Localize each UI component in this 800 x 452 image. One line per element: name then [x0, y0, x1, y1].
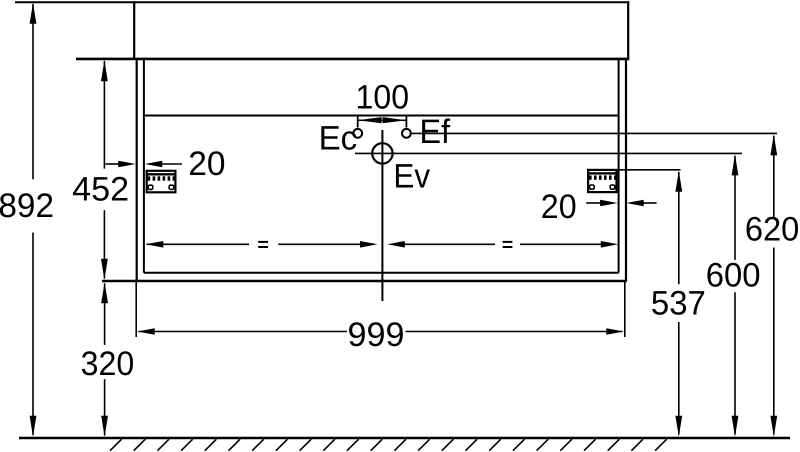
svg-text:892: 892	[0, 187, 54, 225]
svg-text:Ec: Ec	[319, 120, 358, 158]
svg-text:620: 620	[745, 211, 800, 249]
svg-text:452: 452	[72, 170, 129, 208]
svg-text:999: 999	[348, 316, 405, 354]
svg-text:Ef: Ef	[420, 113, 451, 151]
svg-text:Ev: Ev	[393, 157, 430, 195]
svg-text:100: 100	[356, 79, 410, 117]
svg-text:20: 20	[541, 188, 577, 226]
svg-text:20: 20	[188, 145, 225, 183]
svg-text:600: 600	[706, 257, 761, 295]
svg-text:537: 537	[651, 285, 706, 323]
svg-text:320: 320	[81, 345, 135, 383]
